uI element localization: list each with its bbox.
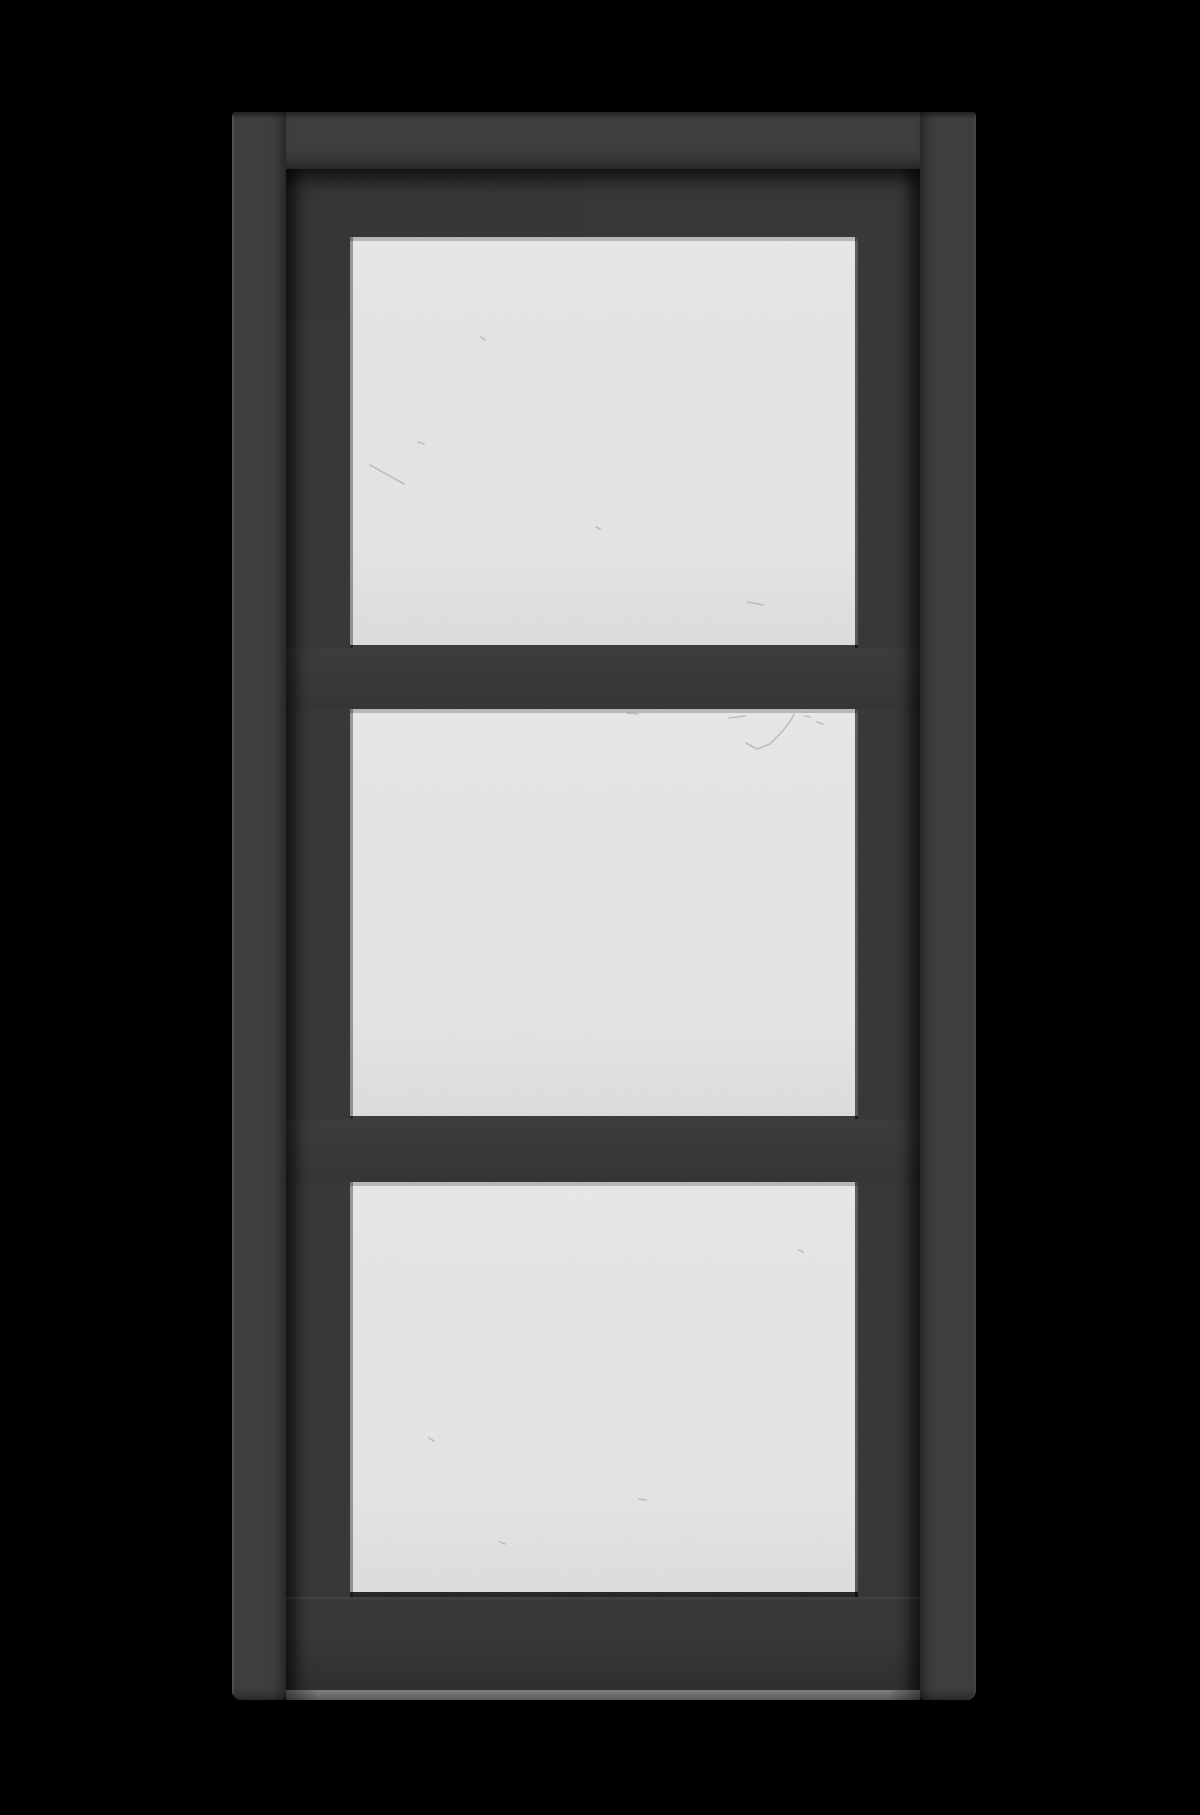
mid-rail-lower <box>286 1119 920 1182</box>
glass-panel-top-surface <box>350 237 858 648</box>
glass-panel-middle-surface <box>350 709 858 1119</box>
door-assembly <box>232 112 976 1700</box>
glass-panel-bottom <box>350 1182 858 1597</box>
glass-panel-middle <box>350 709 858 1119</box>
top-rail <box>286 169 920 237</box>
glass-panel-top <box>350 237 858 648</box>
door-frame-head <box>286 112 920 169</box>
bottom-rail <box>286 1597 920 1690</box>
door-bottom-edge-highlight <box>286 1690 920 1700</box>
glass-panel-bottom-surface <box>350 1182 858 1597</box>
door-frame-right-leg <box>920 112 976 1700</box>
door-slab <box>286 169 920 1700</box>
door-frame-left-leg <box>232 112 286 1700</box>
studio-background <box>0 0 1200 1815</box>
mid-rail-upper <box>286 648 920 709</box>
